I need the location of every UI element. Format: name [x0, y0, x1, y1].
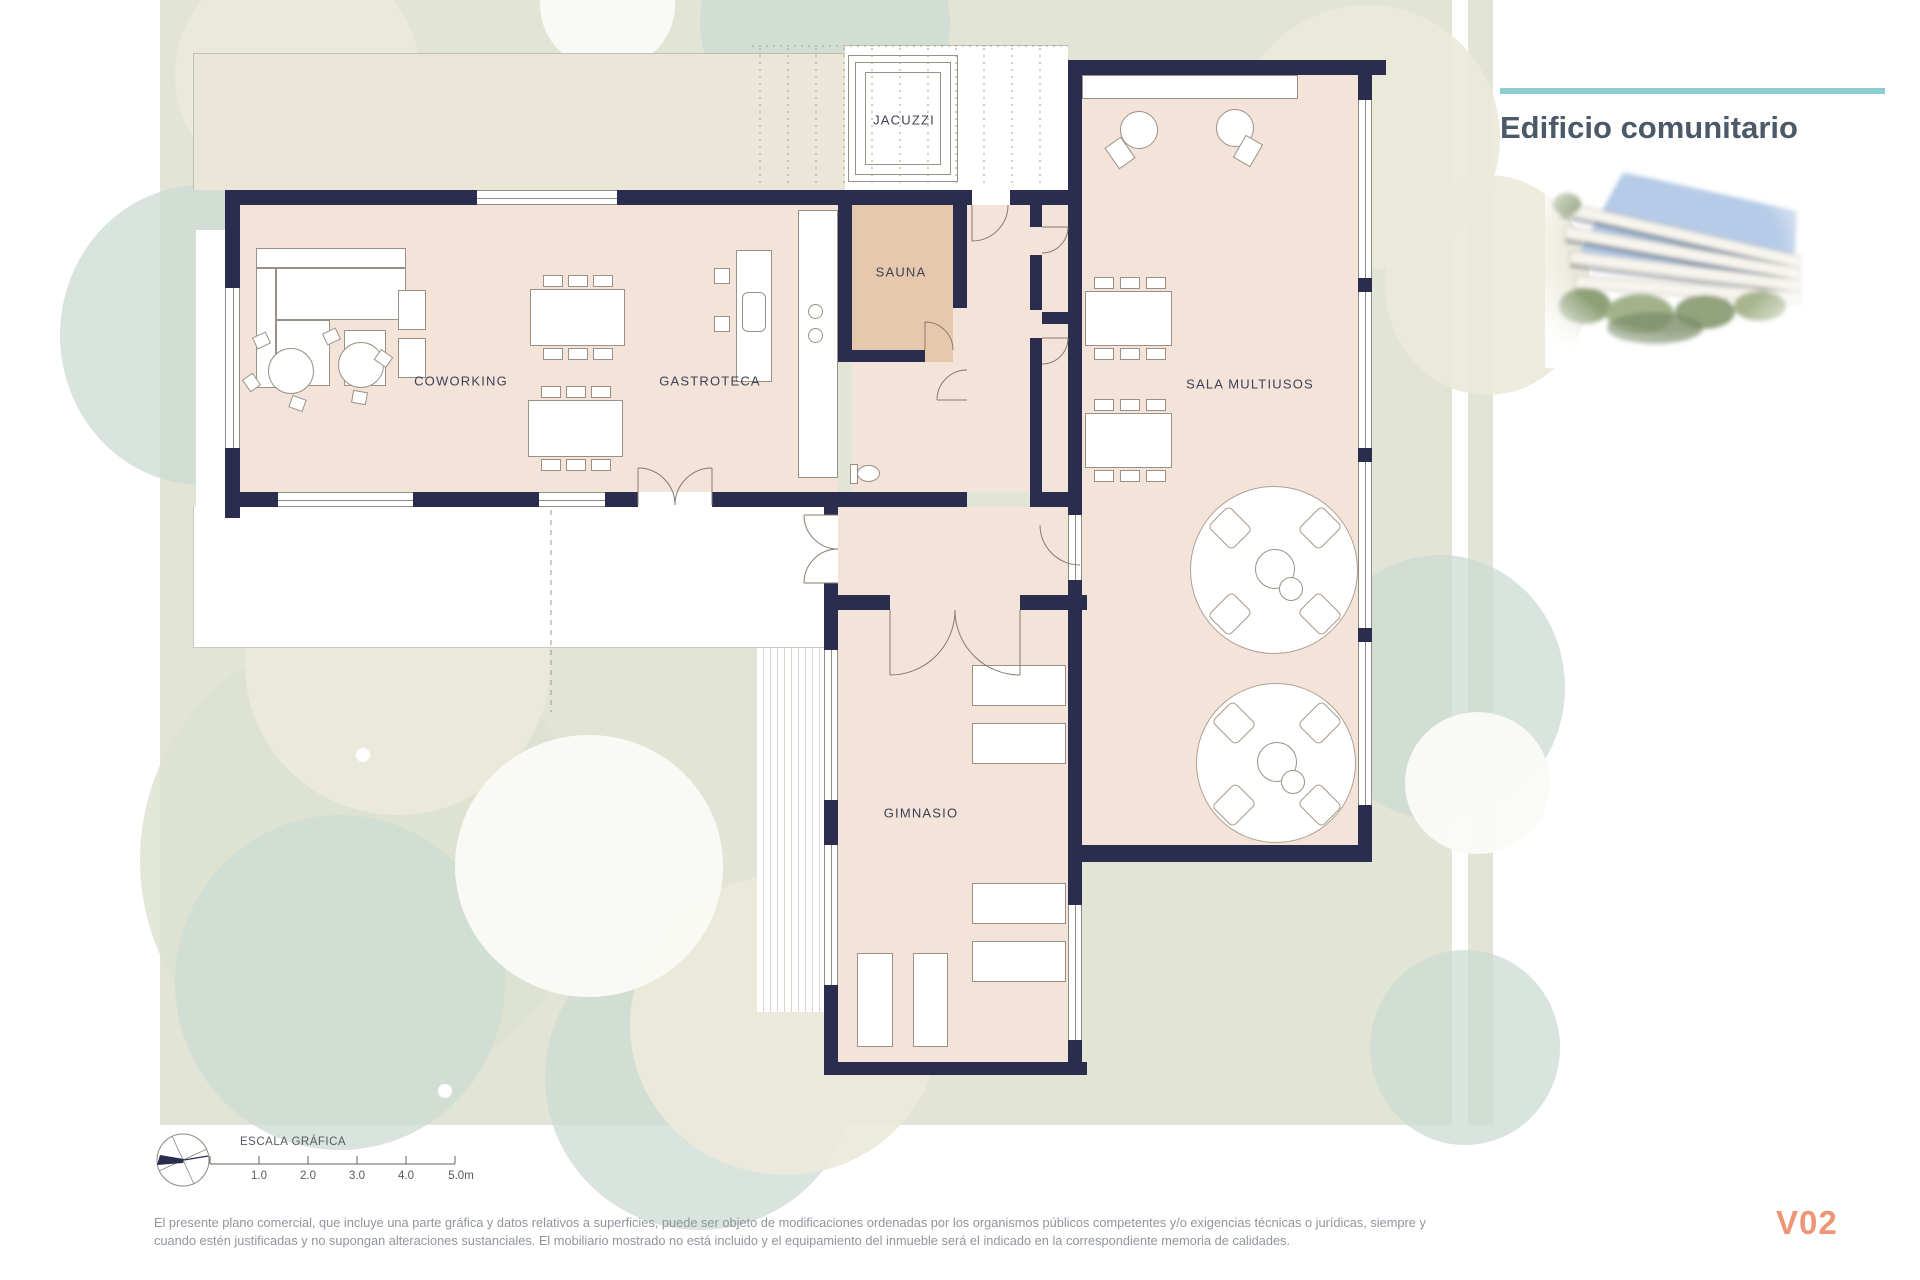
disclaimer-line-1: El presente plano comercial, que incluye…	[154, 1215, 1426, 1230]
building-illustration	[1545, 156, 1830, 368]
scale-title: ESCALA GRÁFICA	[240, 1136, 346, 1148]
scale-tick-label: 4.0	[398, 1170, 414, 1182]
scale-bar	[210, 1156, 455, 1164]
page-title: Edificio comunitario	[1500, 110, 1798, 146]
room-label-gastroteca: GASTROTECA	[659, 374, 761, 389]
room-label-gimnasio: GIMNASIO	[884, 806, 959, 821]
compass-icon	[157, 1134, 209, 1186]
room-label-sauna: SAUNA	[876, 265, 927, 280]
scale-tick-label: 5.0m	[448, 1170, 474, 1182]
scale-tick-label: 3.0	[349, 1170, 365, 1182]
plan-sheet: JACUZZI SAUNA COWORKING GASTROTECA SALA …	[0, 0, 1920, 1280]
accent-rule	[1500, 88, 1885, 94]
scale-tick-label: 2.0	[300, 1170, 316, 1182]
room-label-jacuzzi: JACUZZI	[873, 113, 935, 128]
disclaimer-line-2: cuando estén justificadas y no supongan …	[154, 1233, 1290, 1248]
door-arcs	[638, 205, 1080, 675]
room-label-sala-multiusos: SALA MULTIUSOS	[1186, 377, 1314, 392]
scale-tick-label: 1.0	[251, 1170, 267, 1182]
version-code: V02	[1776, 1204, 1838, 1242]
room-label-coworking: COWORKING	[414, 374, 508, 389]
